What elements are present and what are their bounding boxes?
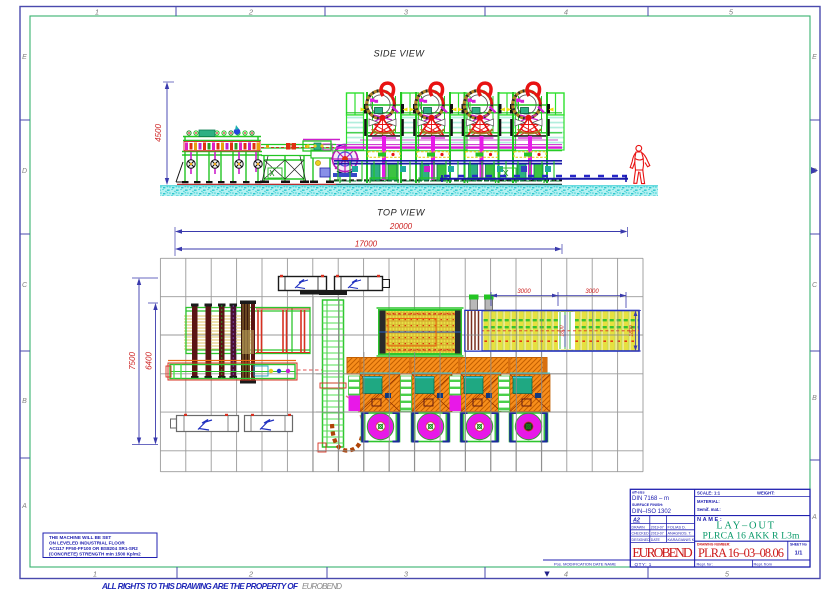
svg-text:off-size: off-size	[632, 491, 645, 495]
svg-text:(CONCRETE) STRENGTH min 1500 K: (CONCRETE) STRENGTH min 1500 Kp/m2	[49, 552, 141, 557]
svg-text:1:1: 1:1	[714, 490, 721, 495]
svg-text:DATE: DATE	[651, 538, 661, 542]
svg-text:B: B	[22, 398, 27, 405]
svg-text:Pos. MODIFICATION DATE NAME: Pos. MODIFICATION DATE NAME	[554, 562, 616, 567]
svg-text:17000: 17000	[355, 240, 378, 249]
svg-text:1/1: 1/1	[795, 551, 803, 557]
svg-text:EUROBEND: EUROBEND	[302, 582, 342, 591]
svg-text:ON LEVELED INDUSTRIAL FLOOR: ON LEVELED INDUSTRIAL FLOOR	[49, 541, 125, 546]
svg-text:FOLIAS D.: FOLIAS D.	[668, 525, 686, 529]
svg-text:A2: A2	[632, 518, 640, 524]
svg-text:3000: 3000	[585, 289, 599, 295]
svg-text:KARAGIANIS K.: KARAGIANIS K.	[668, 538, 696, 542]
svg-text:ANAGNOS. T.: ANAGNOS. T.	[668, 532, 692, 536]
svg-text:PLRA 16–03–08.06: PLRA 16–03–08.06	[698, 546, 784, 560]
svg-text:DIN–ISO 1302: DIN–ISO 1302	[632, 509, 672, 515]
svg-text:TOP VIEW: TOP VIEW	[377, 208, 426, 218]
svg-text:4500: 4500	[154, 124, 163, 142]
svg-text:1800: 1800	[629, 325, 635, 336]
svg-text:A: A	[811, 514, 817, 521]
svg-text:1: 1	[95, 8, 99, 17]
svg-text:WEIGHT:: WEIGHT:	[757, 490, 775, 495]
svg-text:2019-07: 2019-07	[651, 525, 664, 529]
svg-text:Repl. for:: Repl. for:	[697, 561, 713, 566]
svg-text:SIDE VIEW: SIDE VIEW	[374, 49, 426, 59]
svg-text:SURFACE FINISH:: SURFACE FINISH:	[632, 503, 663, 507]
svg-text:CHECKED: CHECKED	[632, 532, 650, 536]
svg-text:MATERIAL:: MATERIAL:	[697, 499, 720, 504]
svg-text:QTY: 1: QTY: 1	[635, 562, 652, 567]
svg-text:D: D	[22, 168, 27, 175]
svg-text:7500: 7500	[128, 352, 137, 370]
svg-text:DRAWN: DRAWN	[632, 525, 646, 529]
svg-text:DIN 7168 – m: DIN 7168 – m	[632, 496, 669, 502]
svg-text:A: A	[21, 503, 27, 510]
svg-text:1800: 1800	[560, 325, 566, 336]
svg-text:E: E	[812, 54, 817, 61]
svg-text:DESIGNED: DESIGNED	[632, 538, 651, 542]
svg-text:4: 4	[564, 8, 568, 17]
svg-text:PLRCA 16 AKK R L3m: PLRCA 16 AKK R L3m	[703, 530, 801, 541]
svg-text:4: 4	[564, 570, 568, 579]
svg-text:2: 2	[248, 570, 254, 579]
svg-text:THE MACHINE WILL BE SET: THE MACHINE WILL BE SET	[49, 535, 111, 540]
svg-text:Semif. mat.:: Semif. mat.:	[697, 507, 721, 512]
svg-text:3000: 3000	[517, 289, 531, 295]
svg-text:20000: 20000	[389, 222, 413, 231]
svg-text:SHEET No: SHEET No	[790, 543, 807, 547]
svg-text:EUROBEND: EUROBEND	[632, 545, 693, 560]
svg-text:6400: 6400	[145, 352, 154, 370]
svg-text:2: 2	[248, 8, 254, 17]
svg-text:ALL RIGHTS TO THIS DRAWING ARE: ALL RIGHTS TO THIS DRAWING ARE THE PROPE…	[101, 582, 299, 591]
svg-text:SCALE:: SCALE:	[697, 490, 713, 495]
svg-text:Repl. from: Repl. from	[754, 561, 773, 566]
svg-text:2019-07: 2019-07	[651, 532, 664, 536]
svg-text:B: B	[812, 395, 817, 402]
svg-text:ACI117 FF50-FF100 OR BS8204 SR: ACI117 FF50-FF100 OR BS8204 SR1-SR2	[49, 546, 138, 551]
svg-text:1: 1	[93, 570, 97, 579]
svg-text:E: E	[22, 54, 27, 61]
